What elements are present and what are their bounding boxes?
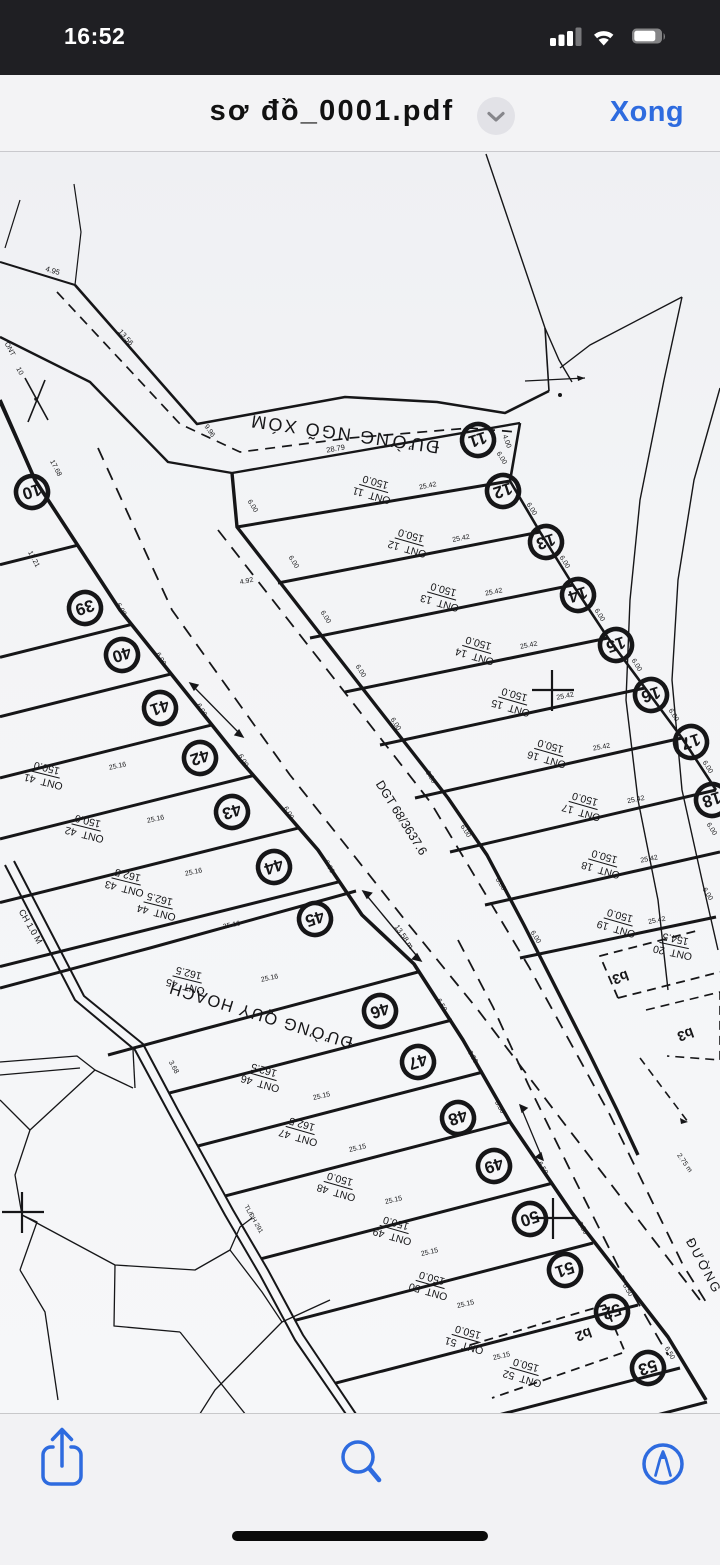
svg-text:6.00: 6.00	[593, 608, 606, 623]
svg-text:25.42: 25.42	[627, 795, 646, 805]
svg-text:25.16: 25.16	[146, 814, 165, 825]
svg-text:6.00: 6.00	[495, 451, 508, 466]
svg-text:25.15: 25.15	[456, 1299, 475, 1310]
svg-text:17: 17	[679, 729, 703, 753]
svg-text:18: 18	[700, 787, 720, 811]
svg-text:25.16: 25.16	[260, 973, 279, 984]
svg-text:41: 41	[148, 695, 172, 719]
svg-text:25.42: 25.42	[640, 854, 659, 864]
svg-text:25.16: 25.16	[184, 867, 203, 878]
svg-text:17.21: 17.21	[26, 550, 40, 569]
svg-text:b3: b3	[675, 1024, 696, 1045]
svg-text:6.00: 6.00	[701, 887, 714, 902]
svg-text:47: 47	[406, 1049, 430, 1073]
svg-text:4.92: 4.92	[239, 577, 254, 587]
svg-text:10: 10	[14, 366, 24, 376]
svg-text:25.42: 25.42	[648, 916, 667, 926]
svg-text:25.15: 25.15	[348, 1143, 367, 1154]
svg-text:6.00: 6.00	[354, 664, 367, 679]
svg-text:39: 39	[73, 595, 97, 619]
svg-text:40: 40	[110, 642, 134, 666]
svg-text:17.68: 17.68	[48, 459, 62, 478]
svg-text:44: 44	[261, 854, 285, 878]
svg-text:3.68: 3.68	[167, 1060, 180, 1075]
svg-text:6.00: 6.00	[246, 499, 259, 514]
svg-text:51: 51	[553, 1257, 577, 1281]
svg-text:25.42: 25.42	[485, 587, 504, 597]
svg-text:25.15: 25.15	[492, 1351, 511, 1362]
svg-text:b2: b2	[573, 1324, 594, 1345]
svg-text:25.42: 25.42	[556, 692, 575, 702]
svg-text:43: 43	[220, 799, 244, 823]
svg-text:9.96: 9.96	[202, 424, 216, 439]
svg-text:6.00: 6.00	[319, 610, 332, 625]
svg-text:6.00: 6.00	[287, 555, 300, 570]
svg-text:25.15: 25.15	[384, 1195, 403, 1206]
svg-text:25.15: 25.15	[312, 1091, 331, 1102]
svg-text:6.00: 6.00	[705, 822, 718, 837]
svg-text:4.00: 4.00	[501, 434, 512, 449]
svg-text:25.42: 25.42	[520, 641, 539, 651]
svg-text:25.15: 25.15	[420, 1247, 439, 1258]
svg-text:53: 53	[636, 1355, 660, 1379]
svg-text:6.00: 6.00	[459, 824, 472, 839]
svg-text:ĐƯỜNG QUY HOẠCH: ĐƯỜNG QUY HOẠCH	[166, 978, 355, 1052]
svg-text:10: 10	[20, 479, 44, 503]
svg-text:4.95: 4.95	[44, 264, 61, 277]
svg-text:25.16: 25.16	[222, 920, 241, 931]
svg-text:6.50: 6.50	[621, 1283, 634, 1298]
svg-text:25.42: 25.42	[419, 481, 438, 491]
svg-text:b3: b3	[610, 967, 631, 988]
svg-text:48: 48	[446, 1105, 470, 1129]
svg-text:42: 42	[188, 745, 212, 769]
svg-text:25.42: 25.42	[592, 742, 611, 752]
svg-text:25.42: 25.42	[452, 534, 471, 544]
svg-text:2.75 m: 2.75 m	[675, 1152, 693, 1174]
svg-text:ĐƯỜNG: ĐƯỜNG	[683, 1235, 720, 1296]
svg-text:45: 45	[303, 906, 327, 930]
svg-text:49: 49	[482, 1153, 506, 1177]
svg-text:25.16: 25.16	[108, 761, 127, 772]
svg-text:46: 46	[368, 998, 392, 1022]
